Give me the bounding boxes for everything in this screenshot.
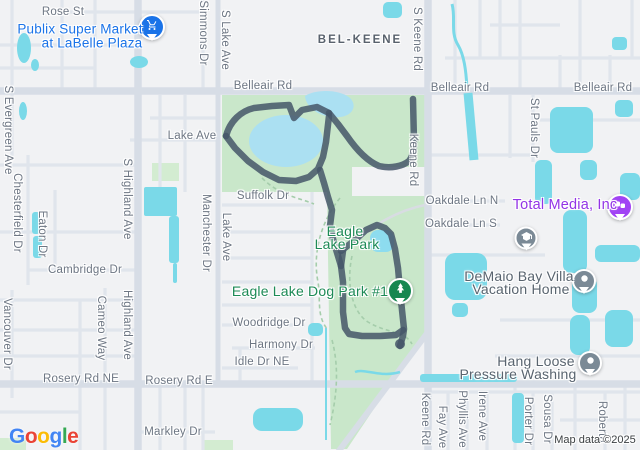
google-logo-letter: o	[37, 425, 49, 448]
google-logo-letter: G	[9, 425, 25, 448]
total-media-marker[interactable]	[607, 194, 633, 220]
publix-store-marker[interactable]	[139, 14, 165, 40]
map-canvas[interactable]: Rose StPublix Super Marketat LaBelle Pla…	[0, 0, 640, 450]
google-logo-letter: g	[50, 425, 62, 448]
demaio-lodging-marker[interactable]	[572, 269, 596, 293]
google-logo-letter: o	[25, 425, 37, 448]
dog-park-tree-marker[interactable]	[387, 278, 413, 304]
school-marker[interactable]	[515, 227, 538, 250]
marker-tail	[579, 287, 589, 299]
marker-tail	[395, 298, 405, 310]
marker-tail	[585, 369, 595, 381]
marker-tail	[615, 214, 625, 226]
map-base	[0, 0, 640, 450]
hang-loose-marker[interactable]	[578, 351, 602, 375]
marker-tail	[521, 244, 531, 256]
google-logo[interactable]: Google	[9, 425, 78, 449]
marker-tail	[147, 34, 157, 46]
google-logo-letter: e	[67, 425, 78, 448]
